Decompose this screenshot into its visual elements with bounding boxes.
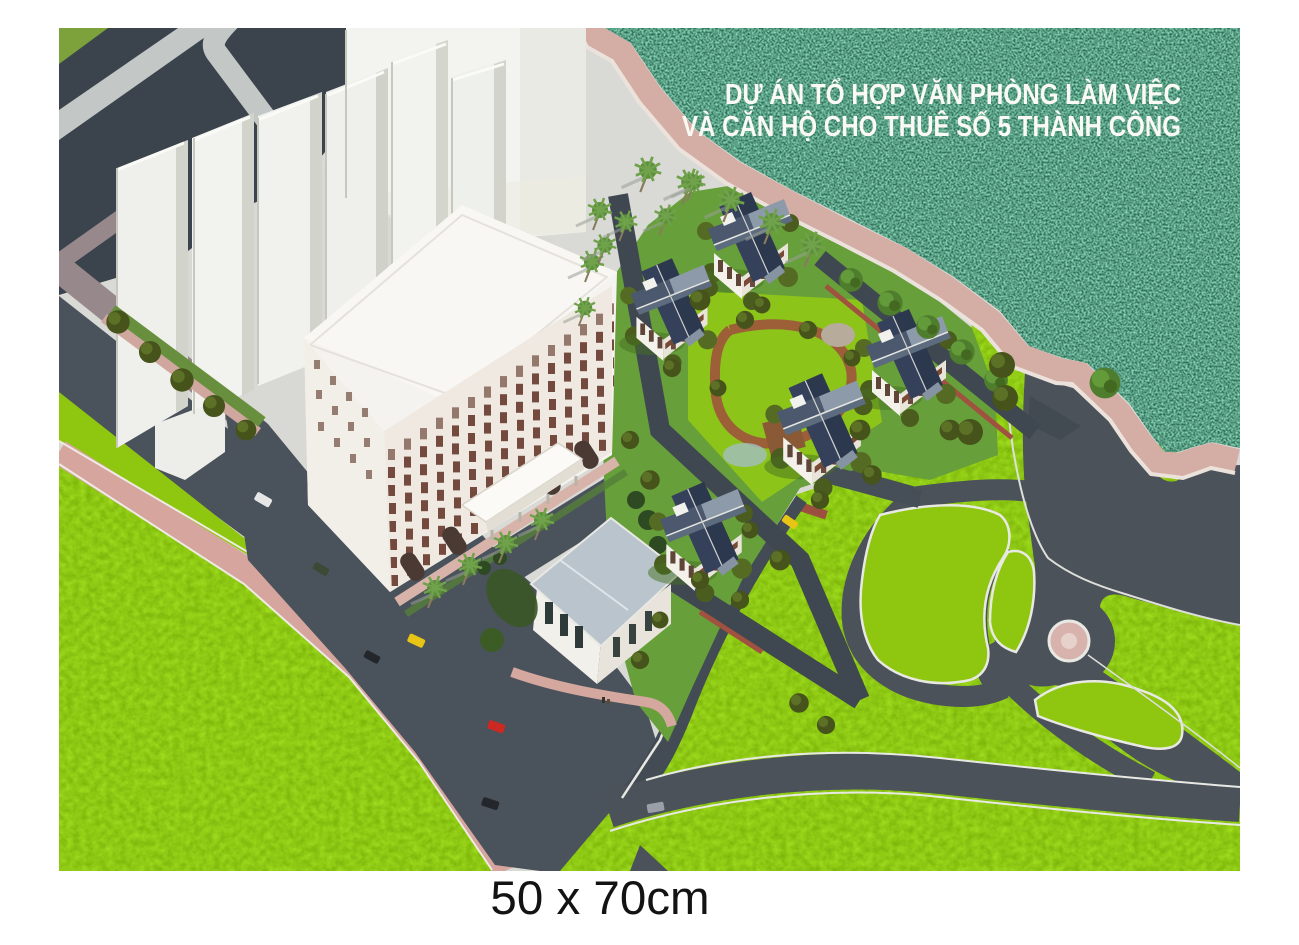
- svg-text:DỰ ÁN TỔ HỢP VĂN PHÒNG LÀM VIỆ: DỰ ÁN TỔ HỢP VĂN PHÒNG LÀM VIỆC: [725, 77, 1181, 111]
- svg-text:VÀ CĂN HỘ CHO THUÊ SỐ 5 THÀNH: VÀ CĂN HỘ CHO THUÊ SỐ 5 THÀNH CÔNG: [682, 109, 1181, 143]
- svg-text:50 x 70cm: 50 x 70cm: [490, 872, 709, 925]
